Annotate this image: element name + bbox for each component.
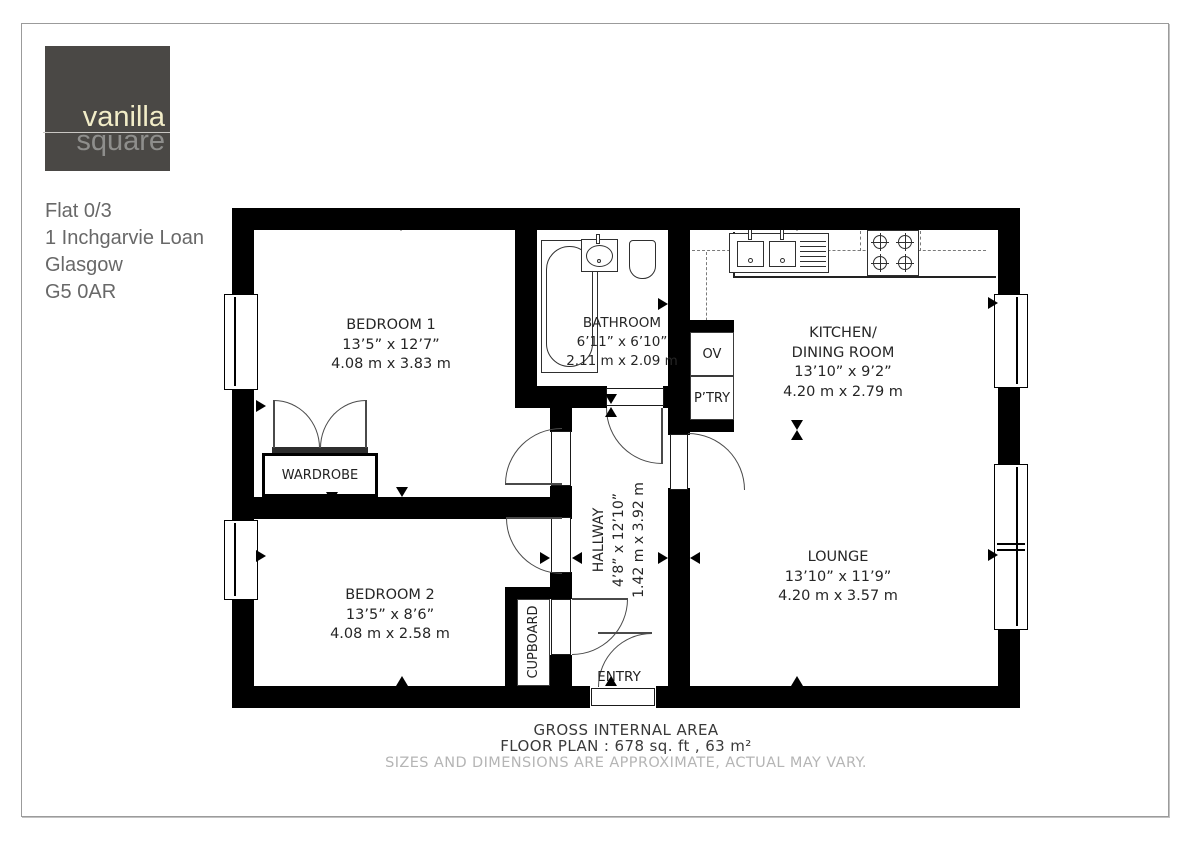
basin-drain-icon xyxy=(597,259,601,263)
dimension-marker xyxy=(690,552,700,564)
wall-cupboard-left xyxy=(505,587,517,686)
entry-door-leaf xyxy=(598,632,652,634)
pantry-label: P’TRY xyxy=(694,391,730,406)
dimension-marker xyxy=(396,676,408,686)
window-bedroom1 xyxy=(224,294,258,390)
bedroom1-label: BEDROOM 1 13’5” x 12’7” 4.08 m x 3.83 m xyxy=(291,316,491,375)
kitchen-counter-dashed-line xyxy=(860,231,861,251)
kitchen-counter-dashed-line xyxy=(920,231,921,251)
footer: GROSS INTERNAL AREA FLOOR PLAN : 678 sq.… xyxy=(232,722,1020,771)
cupboard-label: CUPBOARD xyxy=(526,582,542,702)
burner-icon xyxy=(898,256,912,270)
window-kitchen xyxy=(994,294,1028,388)
wall-left xyxy=(232,208,254,296)
burner-icon xyxy=(898,235,912,249)
entry-label: ENTRY xyxy=(589,669,649,685)
wall-right xyxy=(998,388,1020,466)
wall-lounge-left xyxy=(668,488,690,708)
dimension-marker xyxy=(988,549,998,561)
dimension-marker xyxy=(395,221,407,231)
wall-bathroom-bottom xyxy=(515,386,607,408)
hallway-label: HALLWAY 4’8” x 12’10” 1.42 m x 3.92 m xyxy=(589,448,649,632)
tap-icon xyxy=(596,234,600,244)
pantry-cell: P’TRY xyxy=(690,376,734,420)
dimension-marker xyxy=(791,430,803,440)
dimension-marker xyxy=(605,676,617,686)
dimension-marker xyxy=(540,552,550,564)
address-flat: Flat 0/3 xyxy=(45,198,204,225)
entry-threshold xyxy=(591,688,655,706)
tap-icon xyxy=(780,229,784,240)
floor-plan-area-value: FLOOR PLAN : 678 sq. ft , 63 m² xyxy=(232,738,1020,754)
gross-internal-area-label: GROSS INTERNAL AREA xyxy=(232,722,1020,738)
property-address: Flat 0/3 1 Inchgarvie Loan Glasgow G5 0A… xyxy=(45,198,204,306)
wardrobe-door-leaf xyxy=(273,400,275,448)
dimension-marker xyxy=(791,221,803,231)
bedroom1-door-leaf xyxy=(505,483,562,485)
bathroom-label: BATHROOM 6’11” x 6’10” 2.11 m x 2.09 m xyxy=(524,314,720,371)
dimension-marker xyxy=(326,502,338,512)
bathroom-door-leaf xyxy=(661,408,663,464)
dimension-marker xyxy=(527,298,537,310)
dimension-marker xyxy=(256,400,266,412)
burner-icon xyxy=(873,235,887,249)
basin-icon xyxy=(586,245,613,267)
wall-hallway-left xyxy=(550,655,572,686)
burner-icon xyxy=(873,256,887,270)
dimension-marker xyxy=(988,297,998,309)
dimension-marker xyxy=(791,676,803,686)
bedroom2-door-leaf xyxy=(506,517,562,519)
dimension-marker xyxy=(256,550,266,562)
wall-bottom xyxy=(656,686,1020,708)
sink-drain-icon xyxy=(780,258,785,263)
wall-left xyxy=(232,600,254,708)
sink-drain-icon xyxy=(748,258,753,263)
kitchen-label: KITCHEN/ DINING ROOM 13’10” x 9’2” 4.20 … xyxy=(743,324,943,402)
dimension-marker xyxy=(791,420,803,430)
counter-edge xyxy=(734,276,996,278)
lounge-label: LOUNGE 13’10” x 11’9” 4.20 m x 3.57 m xyxy=(738,548,938,607)
bedroom2-label: BEDROOM 2 13’5” x 8’6” 4.08 m x 2.58 m xyxy=(290,586,490,645)
wardrobe-box: WARDROBE xyxy=(262,453,378,497)
dimension-marker xyxy=(326,492,338,502)
address-city: Glasgow xyxy=(45,252,204,279)
disclaimer-text: SIZES AND DIMENSIONS ARE APPROXIMATE, AC… xyxy=(232,755,1020,771)
wardrobe-door-leaf xyxy=(365,400,367,448)
dimension-marker xyxy=(572,552,582,564)
window-bedroom2 xyxy=(224,520,258,600)
drainer-icon xyxy=(800,241,826,267)
dimension-marker xyxy=(396,487,408,497)
wall-pantry-bottom xyxy=(690,420,734,432)
sink-bowl-icon xyxy=(769,241,796,267)
wall-bedroom2-top xyxy=(232,497,572,519)
cupboard-door-panel xyxy=(551,599,571,655)
tap-icon xyxy=(748,229,752,240)
address-street: 1 Inchgarvie Loan xyxy=(45,225,204,252)
wardrobe-label: WARDROBE xyxy=(282,468,358,483)
dimension-marker xyxy=(658,552,668,564)
lounge-door-panel xyxy=(670,434,688,490)
dimension-marker xyxy=(605,394,617,404)
wall-right xyxy=(998,208,1020,296)
floorplan-page: vanilla square Flat 0/3 1 Inchgarvie Loa… xyxy=(0,0,1200,848)
toilet-icon xyxy=(629,240,656,279)
dimension-marker xyxy=(658,298,668,310)
sink-bowl-icon xyxy=(737,241,764,267)
wall-right xyxy=(998,628,1020,708)
logo-brand-line2: square xyxy=(45,127,165,156)
window-lounge xyxy=(994,464,1028,630)
dimension-marker xyxy=(605,407,617,417)
address-postcode: G5 0AR xyxy=(45,279,204,306)
wall-top xyxy=(232,208,1020,230)
